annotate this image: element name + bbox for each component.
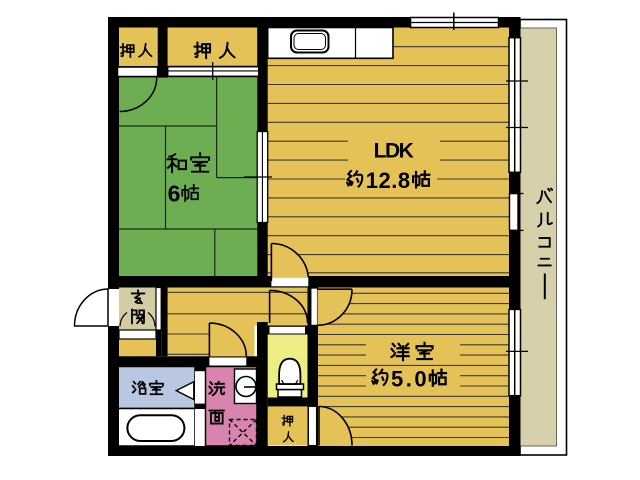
svg-text:5.0: 5.0 <box>391 367 429 392</box>
svg-text:12.8: 12.8 <box>366 168 411 193</box>
svg-text:LDK: LDK <box>374 140 414 163</box>
svg-text:6: 6 <box>168 181 181 207</box>
